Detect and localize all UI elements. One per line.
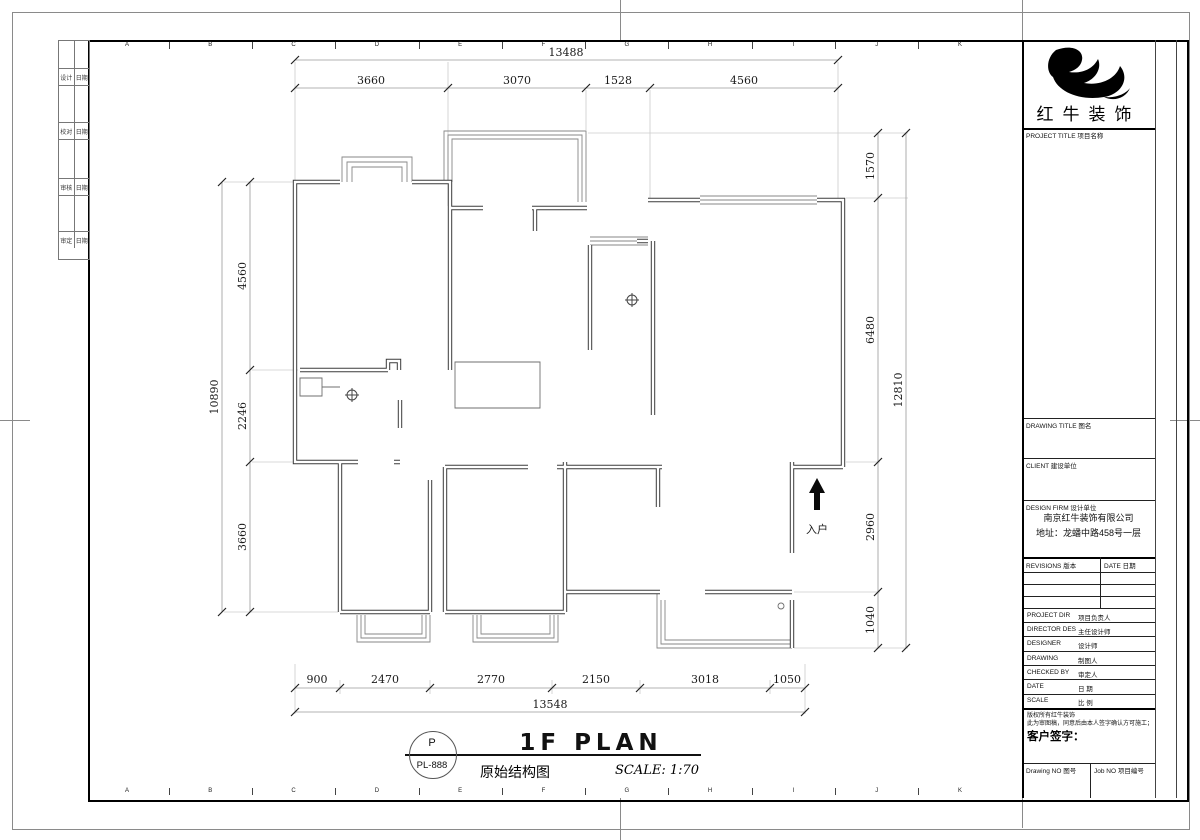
staff-label: DIRECTOR DES [1027, 626, 1076, 633]
titleblock-divider [1022, 40, 1024, 798]
staff-label-cn: 比 例 [1078, 697, 1093, 707]
fold-mark [0, 420, 30, 421]
dim-right-total: 12810 [892, 373, 905, 408]
grid-letter: A [125, 42, 129, 48]
plan-title: 1F PLAN [478, 730, 704, 756]
tb-line [1024, 458, 1155, 459]
grid-letter: I [793, 788, 795, 794]
grid-letter: E [458, 788, 462, 794]
grid-tick [668, 788, 669, 795]
plan-scale: SCALE: 1:70 [615, 763, 699, 778]
company-address: 地址：龙蟠中路458号一层 [1022, 526, 1155, 539]
drawing-no-label: Drawing NO 图号 [1026, 765, 1076, 775]
plan-subtitle: 原始结构图 [480, 762, 550, 782]
dim-top-total: 13488 [549, 46, 584, 59]
client-signature-label: 客户签字： [1027, 728, 1085, 744]
dim: 4560 [236, 262, 249, 290]
staff-label: DRAWING [1027, 655, 1058, 662]
entry-arrow-icon [809, 478, 825, 510]
tb-line [1024, 694, 1155, 695]
job-no-label: Job NO 项目编号 [1094, 765, 1144, 775]
staff-label: CHECKED BY [1027, 669, 1069, 676]
staff-label: SCALE [1027, 697, 1048, 704]
staff-label-cn: 制图人 [1078, 655, 1098, 665]
tb-line [1024, 584, 1155, 585]
grid-tick [918, 788, 919, 795]
entry-label: 入户 [806, 522, 828, 536]
staff-label-cn: 日 期 [1078, 683, 1093, 693]
dim: 4560 [730, 74, 758, 87]
dim: 3018 [691, 673, 719, 686]
dim: 3660 [236, 523, 249, 551]
drawing-title-label: DRAWING TITLE 图名 [1026, 420, 1091, 430]
dim-bottom-total: 13548 [533, 698, 568, 711]
walls [295, 182, 843, 648]
dim: 3660 [357, 74, 385, 87]
grid-tick [335, 788, 336, 795]
tb-line [1024, 596, 1155, 597]
fold-mark [620, 798, 621, 840]
dim: 1040 [864, 606, 877, 634]
staff-label: DATE [1027, 683, 1044, 690]
grid-letter: B [208, 788, 212, 794]
dim: 2150 [582, 673, 610, 686]
dim: 1570 [864, 152, 877, 180]
staff-label-cn: 主任设计师 [1078, 626, 1111, 636]
tb-line [1024, 572, 1155, 573]
grid-tick [419, 788, 420, 795]
staff-label: DESIGNER [1027, 640, 1061, 647]
copyright-note-2: 此为审图稿，同意后由本人签字确认方可施工； [1027, 718, 1153, 727]
fold-mark [620, 0, 621, 40]
staff-label-cn: 设计师 [1078, 640, 1098, 650]
client-label: CLIENT 建设单位 [1026, 460, 1077, 470]
tb-line [1024, 557, 1155, 559]
floor-plan: 入户 13488 3660 3070 1528 4560 10890 4560 … [205, 45, 920, 720]
staff-label-cn: 项目负责人 [1078, 612, 1111, 622]
staff-label-cn: 审定人 [1078, 669, 1098, 679]
margin-line [1176, 40, 1177, 798]
fold-mark [1022, 798, 1023, 828]
grid-tick [752, 788, 753, 795]
dim: 900 [307, 673, 328, 686]
grid-tick [169, 788, 170, 795]
tb-line [1024, 679, 1155, 680]
grid-letter: A [125, 788, 129, 794]
fold-mark [1022, 0, 1023, 40]
badge-letter: P [409, 737, 455, 749]
dim: 6480 [864, 316, 877, 344]
sig-cell: 审核 [59, 179, 75, 195]
grid-tick [585, 788, 586, 795]
tb-line [1024, 500, 1155, 501]
tb-line [1100, 557, 1101, 608]
tb-line [1024, 418, 1155, 419]
grid-letter: G [624, 788, 629, 794]
dim: 2770 [477, 673, 505, 686]
titleblock-right-line [1155, 40, 1156, 798]
revisions-date-label: DATE 日期 [1104, 560, 1136, 570]
grid-letter: C [291, 788, 295, 794]
tb-line [1024, 651, 1155, 652]
tb-line [1090, 763, 1091, 798]
dim-left-total: 10890 [208, 380, 221, 415]
grid-tick [169, 42, 170, 49]
company-logo-icon [1038, 46, 1143, 100]
dim: 2246 [236, 402, 249, 430]
tb-line [1024, 636, 1155, 637]
staff-label: PROJECT DIR [1027, 612, 1070, 619]
sig-cell: 审定 [59, 232, 75, 248]
dim: 1528 [604, 74, 632, 87]
sig-cell: 校对 [59, 123, 75, 139]
tb-line [1024, 608, 1155, 609]
grid-letter: D [375, 788, 379, 794]
grid-tick [835, 788, 836, 795]
sig-cell: 设计 [59, 69, 75, 85]
tb-line [1024, 665, 1155, 666]
tb-line [1024, 622, 1155, 623]
signature-strip: 设计日期 校对日期 审核日期 审定日期 [58, 40, 90, 260]
drain-symbol [345, 293, 639, 402]
dim: 2960 [864, 513, 877, 541]
project-title-label: PROJECT TITLE 项目名称 [1026, 130, 1103, 140]
badge-number: PL-888 [407, 760, 457, 771]
grid-letter: F [542, 788, 546, 794]
revisions-label: REVISIONS 版本 [1026, 560, 1076, 570]
dim: 1050 [773, 673, 801, 686]
company-name: 南京红牛装饰有限公司 [1022, 511, 1155, 524]
grid-letter: J [875, 788, 878, 794]
drawing-sheet: 设计日期 校对日期 审核日期 审定日期 ABCDEFGHIJK ABCDEFGH… [0, 0, 1200, 840]
grid-tick [252, 788, 253, 795]
grid-tick [502, 788, 503, 795]
company-logo-text: 红牛装饰 [1022, 100, 1155, 125]
extension-lines [224, 62, 908, 714]
fixture-lines [300, 362, 784, 609]
grid-letter: K [958, 42, 962, 48]
grid-letter: H [708, 788, 712, 794]
dim: 3070 [503, 74, 531, 87]
dim: 2470 [371, 673, 399, 686]
grid-ruler-bottom: ABCDEFGHIJK [88, 786, 1015, 798]
grid-letter: K [958, 788, 962, 794]
